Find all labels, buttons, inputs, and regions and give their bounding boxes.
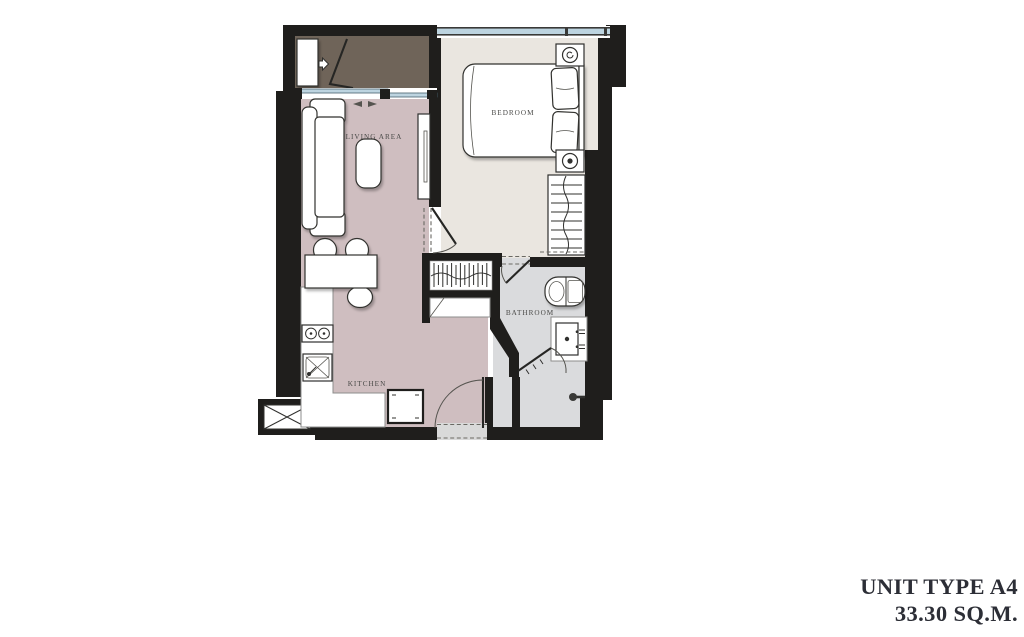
wall-bottom-left	[315, 427, 437, 440]
kitchen-sink-icon	[303, 354, 332, 381]
nightstand-bottom-icon	[556, 150, 584, 172]
fridge-icon	[388, 390, 423, 423]
sofa-icon	[302, 99, 345, 236]
bedroom-window	[437, 26, 610, 38]
pillow-icon	[551, 67, 579, 109]
wall-balcony-left	[283, 25, 295, 91]
pillow-icon	[551, 111, 579, 153]
bathroom-label: BATHROOM	[506, 309, 554, 317]
tv-console-icon	[418, 114, 430, 199]
window-mullion	[565, 27, 568, 36]
closet-rail-bottom	[430, 290, 492, 298]
wardrobe-icon	[548, 175, 585, 255]
stool-icon	[348, 287, 373, 308]
floor-plan-drawing: BEDROOM LIVING AREA KITCHEN BATHROOM	[0, 0, 1024, 637]
wall-bath-top-right	[530, 257, 598, 267]
window-mullion	[604, 27, 607, 36]
foyer-cabinet-icon	[430, 298, 490, 317]
headboard	[579, 65, 584, 156]
bedroom-label: BEDROOM	[492, 109, 535, 117]
title-block: UNIT TYPE A4 33.30 SQ.M.	[698, 573, 1018, 627]
kitchen-label: KITCHEN	[348, 380, 387, 388]
wall-pocket-right	[512, 377, 520, 430]
unit-type-title: UNIT TYPE A4	[698, 573, 1018, 600]
dining-table-icon	[305, 255, 377, 288]
closet-rail-top	[430, 253, 492, 261]
entry-closet-icon	[430, 261, 492, 290]
wall-bottom-right	[487, 427, 603, 440]
vanity-basin-icon	[551, 317, 587, 361]
nightstand-top-icon	[556, 44, 584, 66]
wall-top	[283, 25, 437, 36]
wall-right-mid	[585, 150, 612, 400]
living-area-label: LIVING AREA	[346, 133, 403, 141]
toilet-icon	[545, 277, 585, 306]
ac-unit-icon	[297, 39, 318, 86]
wall-mid-lower	[422, 253, 430, 323]
cooktop-icon	[302, 325, 333, 342]
coffee-table-icon	[356, 139, 381, 188]
wall-left	[276, 91, 301, 397]
wall-pocket-left	[485, 377, 493, 430]
wall-step-top-right	[598, 58, 626, 87]
wall-living-bedroom	[429, 36, 441, 207]
floor-plan-page: BEDROOM LIVING AREA KITCHEN BATHROOM UNI…	[0, 0, 1024, 637]
unit-area-text: 33.30 SQ.M.	[698, 600, 1018, 627]
